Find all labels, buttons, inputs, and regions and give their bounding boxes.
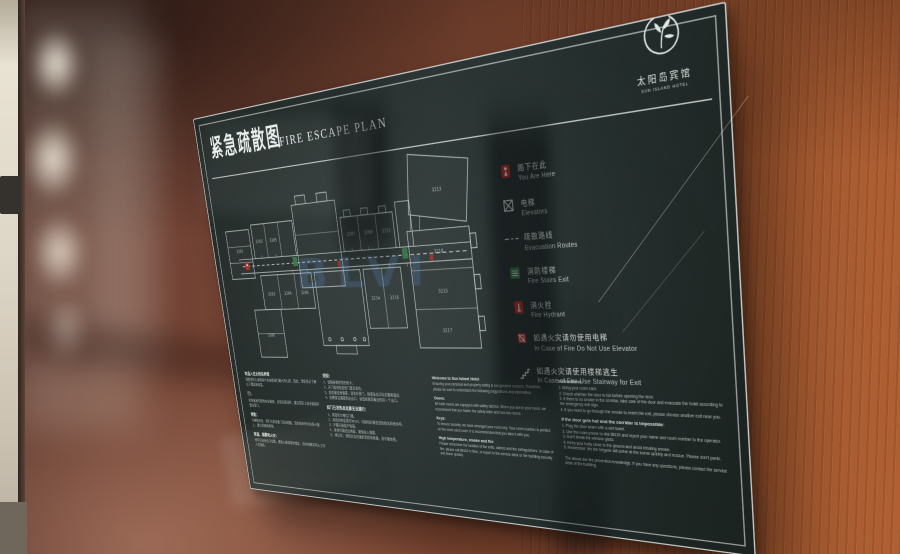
info-body: 1、请随身携带您的房卡。 2、开门前请检查房门是否发热。 3、如走廊没有烟雾，请… [323,380,427,406]
room-label: 3218 [434,248,444,254]
legend-item-fire-stairs: 消防楼梯 Fire Stairs Exit [507,254,725,287]
door-hinge [0,176,21,214]
you-are-here-icon [498,164,513,179]
room-label: 3215 [438,288,448,294]
legend-label-zh: 消火栓 [530,298,565,310]
info-body: 所有客房均配有安全锁链，当您在房间时，建议您扣上安全锁链并锁好房门。 [248,398,320,412]
info-body: 1. Bring your room card. 2. Check whethe… [558,385,729,420]
window-reflection [30,28,82,100]
photo-scene: 紧急疏散图 FIRE ESCAPE PLAN 太阳岛宾馆 SUN ISLAND … [0,0,900,554]
hydrant-icon [511,301,526,314]
route-icon [504,233,519,246]
room-label: 3209 [364,230,373,236]
window-reflection [24,118,82,200]
room-label: 3205 [269,238,277,244]
legend-item-elevators: 电梯 Elevators [501,175,721,220]
room-label: 3203 [255,239,263,244]
info-column-en-welcome: Welcome to Sun Island Hotel Ensuring you… [432,376,558,481]
no-elevator-icon [514,334,529,344]
info-body: 保障您的人身和财产安全是我们最大的心愿，因此，请您务必了解以下建议和信息。 [245,378,317,391]
glare-streak [200,118,370,213]
info-column-en-instructions: Instructions: 1. Bring your room card. 2… [558,379,734,499]
legend-item-fire-hydrant: 消火栓 Fire Hydrant [511,293,728,320]
room-label: 3211 [382,228,392,234]
room-label: 3213 [431,186,441,193]
room-label: 3208 [268,333,276,338]
legend-label-zh: 消防楼梯 [527,263,569,277]
window-reflection-haze [95,40,165,370]
room-label: 3204 [284,291,293,296]
room-label: 3201 [236,249,244,254]
wall-strip [0,0,20,554]
elevator-icon [501,199,516,212]
floor-object [0,502,27,554]
stairs-exit-icon [508,267,523,279]
legend-label-zh: 如遇火灾请勿使用电梯 [533,332,637,344]
legend-item-no-elevator: 如遇火灾请勿使用电梯 In Case of Fire Do Not Use El… [514,331,729,354]
legend-label-en: Elevators [521,208,548,218]
legend-label-en: Fire Hydrant [531,311,566,319]
legend-label-en: In Case of Fire Do Not Use Elevator [534,345,637,353]
hotel-logo: 太阳岛宾馆 SUN ISLAND HOTEL [629,6,697,96]
legend: 阁下在此 You Are Here 电梯 Elevators 疏散路线 Evac… [497,135,731,391]
room-label: 3202 [268,292,276,297]
legend-label-en: Fire Stairs Exit [528,277,570,287]
info-body: 1. Plug the door seam with a wet towel. … [562,424,733,481]
watermark: BLVI [295,246,433,299]
room-label: 3207 [346,231,355,237]
legend-label-zh: 电梯 [520,194,547,209]
info-body: Ensuring your personal and property safe… [432,382,549,396]
room-label: 3217 [442,328,452,333]
legend-label-zh: 如遇火灾请使用楼梯逃生 [536,365,641,378]
logo-emblem-icon [637,8,687,64]
window-reflection [32,214,87,290]
door-edge-strip [18,0,25,554]
